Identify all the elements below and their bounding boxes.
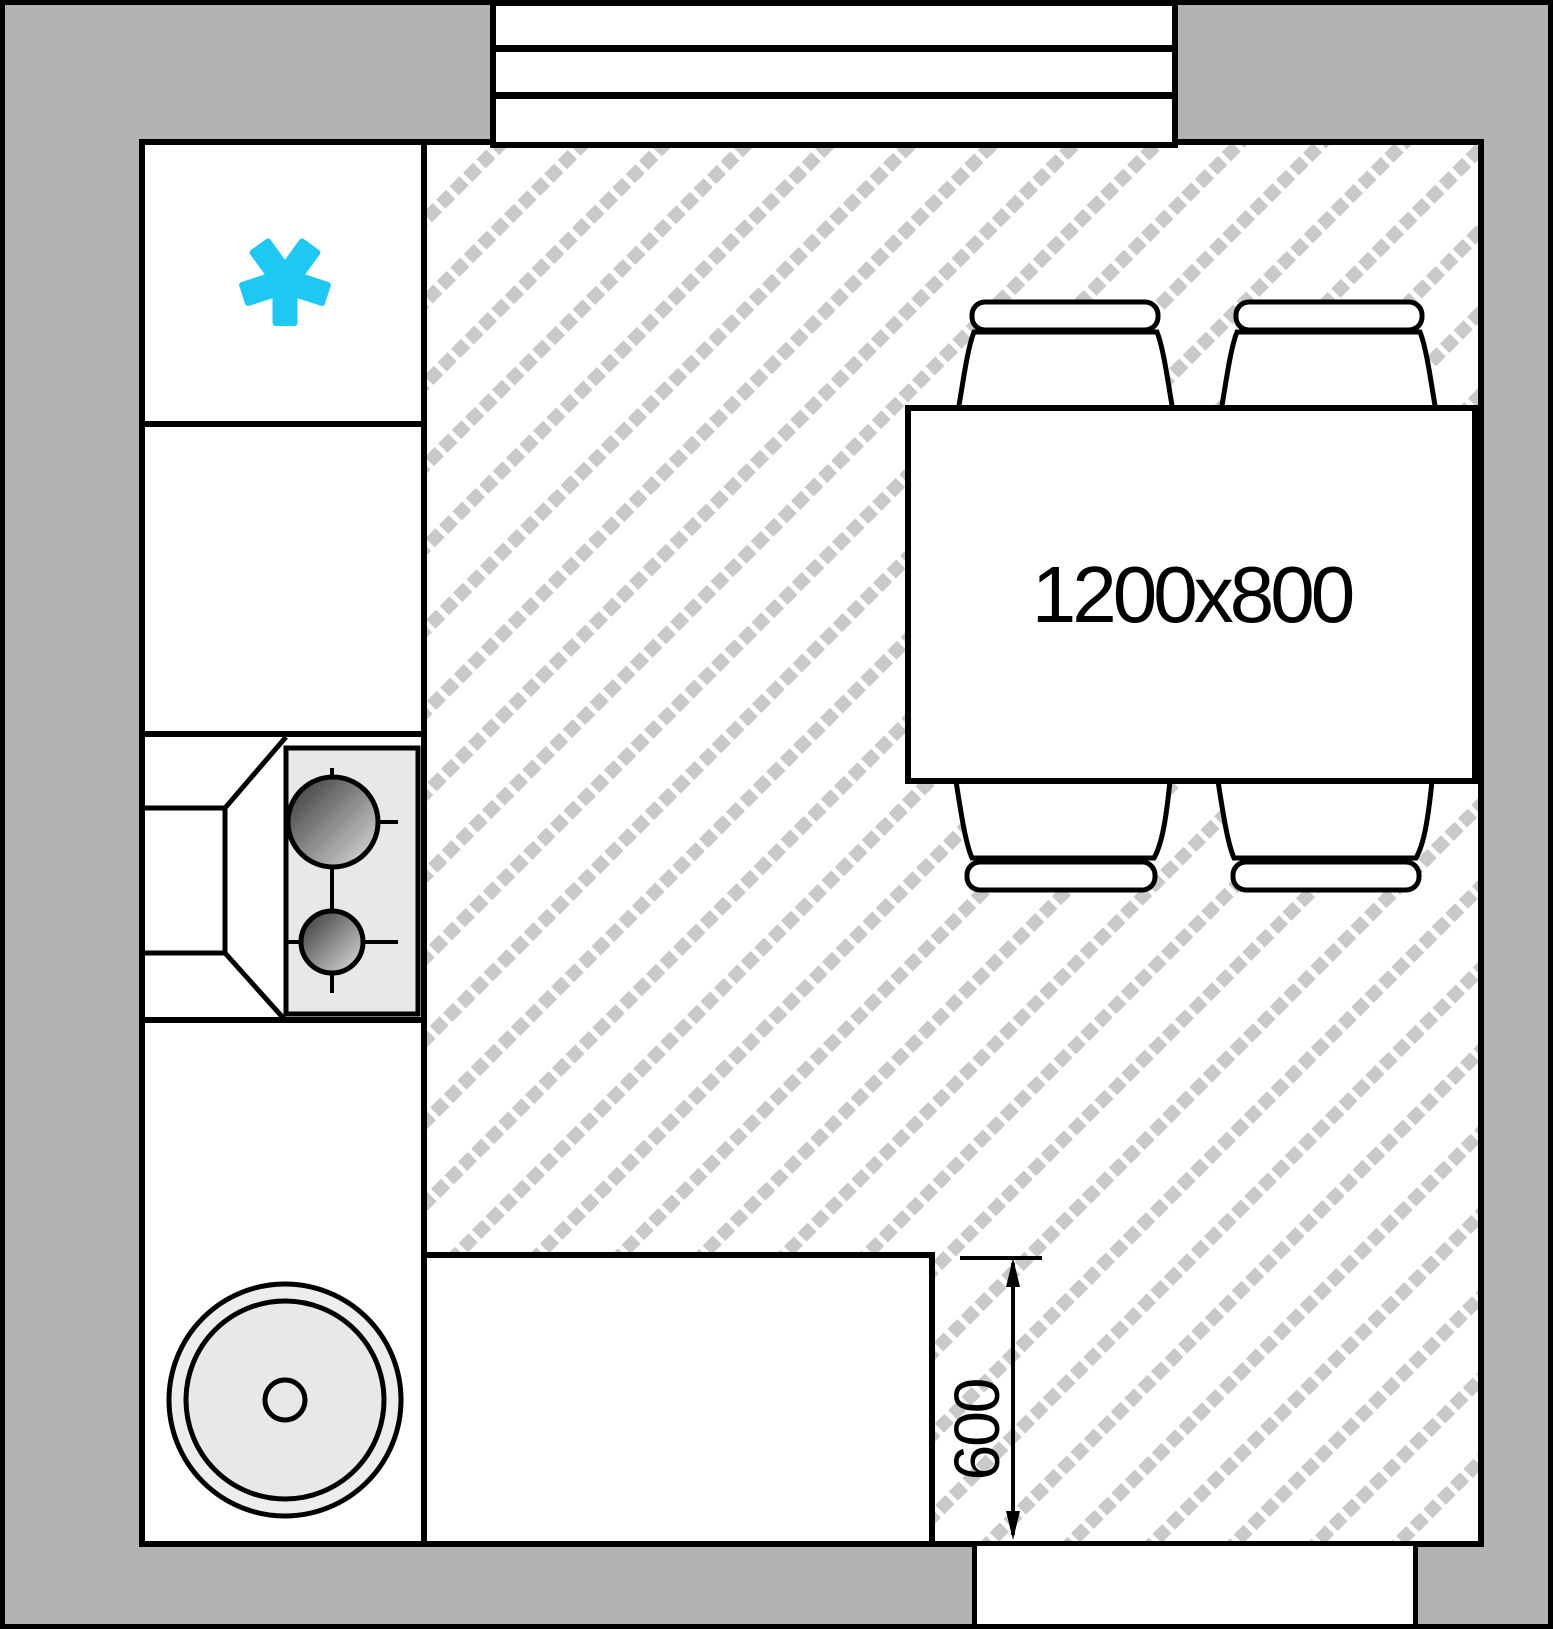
door-opening — [972, 1546, 1418, 1624]
round-sink — [161, 1276, 409, 1524]
freezer-asterisk-icon — [235, 231, 335, 331]
chair-seat — [956, 781, 1170, 858]
dining-table: 1200x800 — [905, 405, 1478, 784]
burner-small-icon — [301, 911, 363, 973]
chair-backrest — [972, 302, 1158, 330]
chair-seat — [1218, 781, 1432, 858]
kitchen-floor-plan: 1200x800 600 — [0, 0, 1553, 1629]
chair-backrest — [1233, 862, 1419, 890]
chair-seat — [1221, 332, 1436, 412]
counter-divider — [145, 421, 427, 427]
window-pane-line — [490, 92, 1178, 99]
chairs-bottom — [940, 780, 1450, 895]
chairs-top — [940, 290, 1450, 412]
burner-large-icon — [288, 777, 378, 867]
table-size-label: 1200x800 — [1032, 549, 1351, 641]
counter-bottom — [427, 1252, 935, 1541]
oven-front — [145, 737, 286, 1021]
arrowhead-up-icon — [1006, 1258, 1020, 1287]
window-pane-line — [490, 45, 1178, 52]
dimension-label: 600 — [942, 1330, 1012, 1530]
chair-backrest — [967, 862, 1155, 890]
sink-drain-icon — [265, 1380, 305, 1420]
chair-seat — [958, 332, 1173, 412]
stove-two-burner — [145, 735, 421, 1023]
chair-backrest — [1236, 302, 1422, 330]
window — [490, 0, 1178, 148]
